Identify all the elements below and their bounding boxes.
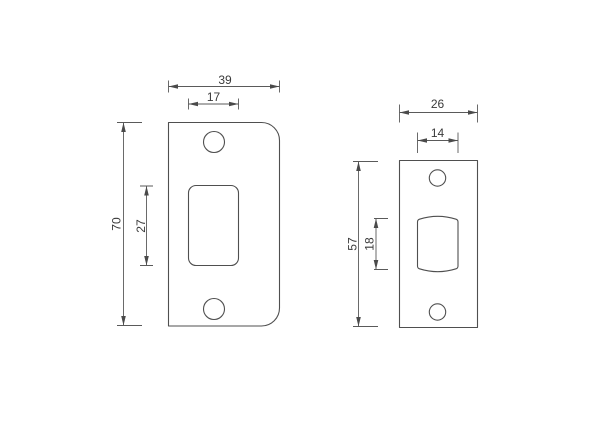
dim-value-cutout-height-small: 18	[363, 237, 377, 251]
dim-value-overall-height-large: 70	[110, 217, 124, 231]
dim-arrow-top	[374, 219, 379, 229]
dim-value-cutout-width-small: 14	[431, 126, 445, 140]
dim-arrow-top	[144, 186, 149, 196]
plate-large-bolt-cutout	[189, 186, 239, 266]
plate-small-screw-hole-top	[429, 170, 445, 186]
dim-arrow-right	[270, 84, 280, 89]
dim-arrow-bottom	[121, 316, 126, 326]
dim-plate-small-overall-width: 26	[400, 97, 478, 123]
dim-arrow-bottom	[144, 256, 149, 266]
plate-large	[169, 123, 280, 327]
dim-arrow-bottom	[374, 260, 379, 270]
plate-small-screw-hole-bottom	[429, 304, 445, 320]
plate-large-screw-hole-top	[204, 132, 225, 153]
dim-value-overall-height-small: 57	[346, 237, 360, 251]
dim-plate-large-overall-width: 39	[169, 73, 280, 93]
dim-value-cutout-width-large: 17	[207, 90, 221, 104]
page: { "canvas": { "width": "600", "height": …	[0, 0, 600, 424]
dim-plate-large-cutout-width: 17	[189, 90, 239, 110]
dim-value-cutout-height-large: 27	[134, 219, 148, 233]
dim-arrow-top	[121, 123, 126, 133]
dim-arrow-left	[189, 102, 199, 107]
dim-arrow-right	[468, 110, 478, 115]
dim-arrow-top	[356, 162, 361, 172]
dim-arrow-right	[449, 138, 459, 143]
dim-arrow-left	[400, 110, 410, 115]
dim-arrow-left	[169, 84, 179, 89]
strike-plates-drawing: 39 17 70 27	[0, 0, 600, 424]
technical-drawing-canvas: 39 17 70 27	[0, 0, 600, 424]
dim-value-overall-width-large: 39	[218, 73, 232, 87]
dim-value-overall-width-small: 26	[431, 97, 445, 111]
plate-large-outline	[169, 123, 280, 327]
plate-small	[400, 161, 478, 328]
dim-plate-small-cutout-height: 18	[363, 219, 389, 270]
dim-plate-small-cutout-width: 14	[418, 126, 459, 153]
plate-large-screw-hole-bottom	[204, 299, 225, 320]
dim-arrow-right	[229, 102, 239, 107]
dim-plate-large-cutout-height: 27	[134, 186, 153, 266]
plate-small-outline	[400, 161, 478, 328]
dim-arrow-left	[418, 138, 428, 143]
plate-small-latch-cutout	[418, 216, 459, 271]
dim-arrow-bottom	[356, 317, 361, 327]
